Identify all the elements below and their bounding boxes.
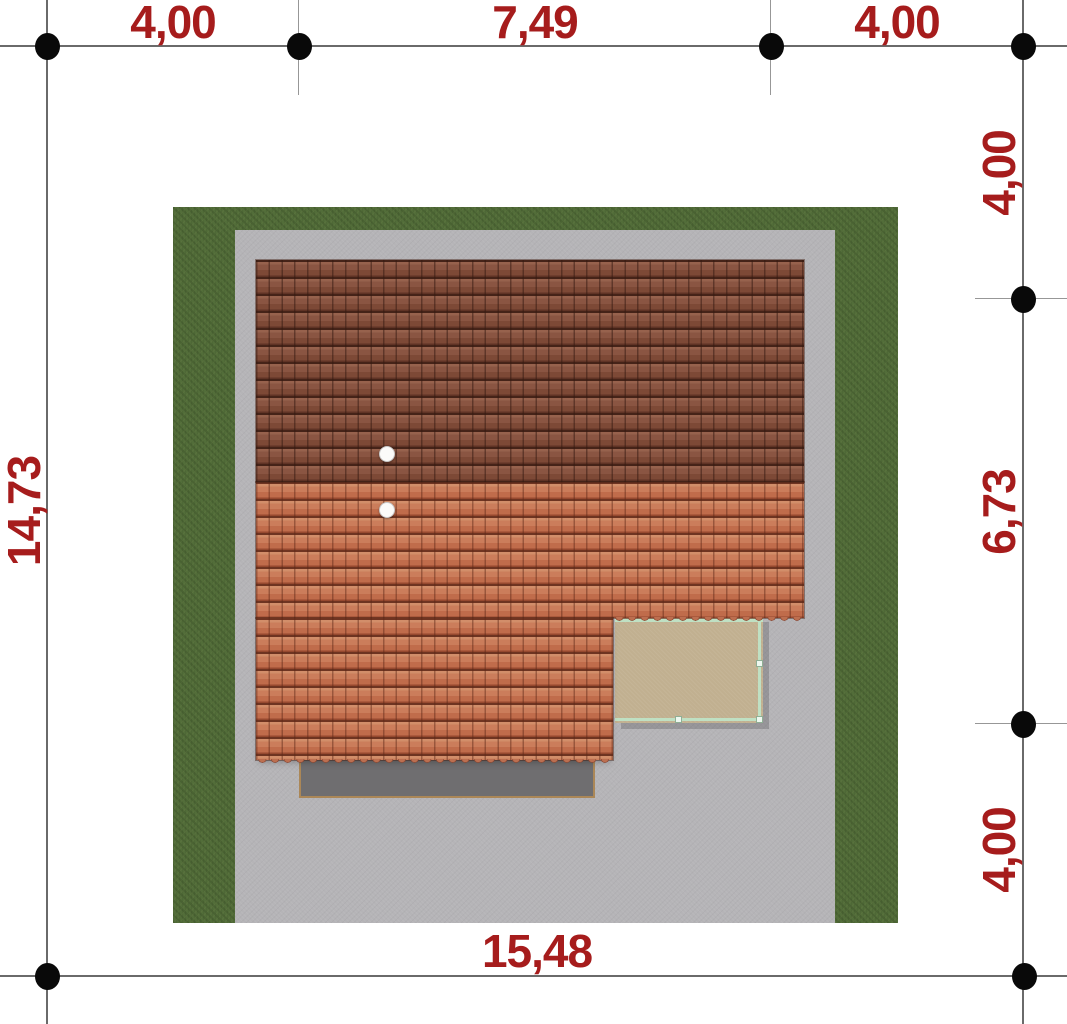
dimension-marker	[35, 33, 60, 60]
dim-label-right-top: 4,00	[976, 130, 1022, 216]
dimension-marker	[1011, 711, 1036, 738]
terrace	[615, 616, 763, 723]
chimney	[379, 446, 395, 462]
roof-south-slope-upper	[256, 482, 804, 618]
railing-post	[675, 716, 682, 723]
dim-label-top-middle: 7,49	[492, 0, 578, 45]
terrace-railing-bottom	[615, 718, 763, 721]
dimension-marker	[759, 33, 784, 60]
roof-north-slope	[256, 260, 804, 482]
dimension-marker	[1012, 963, 1037, 990]
dim-label-left: 14,73	[1, 456, 47, 566]
paved-pad	[299, 760, 595, 798]
dimension-marker	[35, 963, 60, 990]
dim-label-right-middle: 6,73	[976, 469, 1022, 555]
dim-label-right-bottom: 4,00	[976, 807, 1022, 893]
dim-label-top-left: 4,00	[130, 0, 216, 45]
dimension-marker	[1011, 286, 1036, 313]
terrace-railing-right	[758, 619, 761, 721]
railing-post	[756, 716, 763, 723]
railing-post	[756, 660, 763, 667]
site-plan-canvas: 4,00 7,49 4,00 14,73 4,00 6,73 4,00 15,4…	[0, 0, 1067, 1024]
dim-label-top-right: 4,00	[854, 0, 940, 45]
chimney	[379, 502, 395, 518]
dimension-marker	[287, 33, 312, 60]
dimension-marker	[1011, 33, 1036, 60]
dim-label-bottom: 15,48	[482, 928, 592, 974]
roof-south-slope-lower	[256, 618, 613, 760]
